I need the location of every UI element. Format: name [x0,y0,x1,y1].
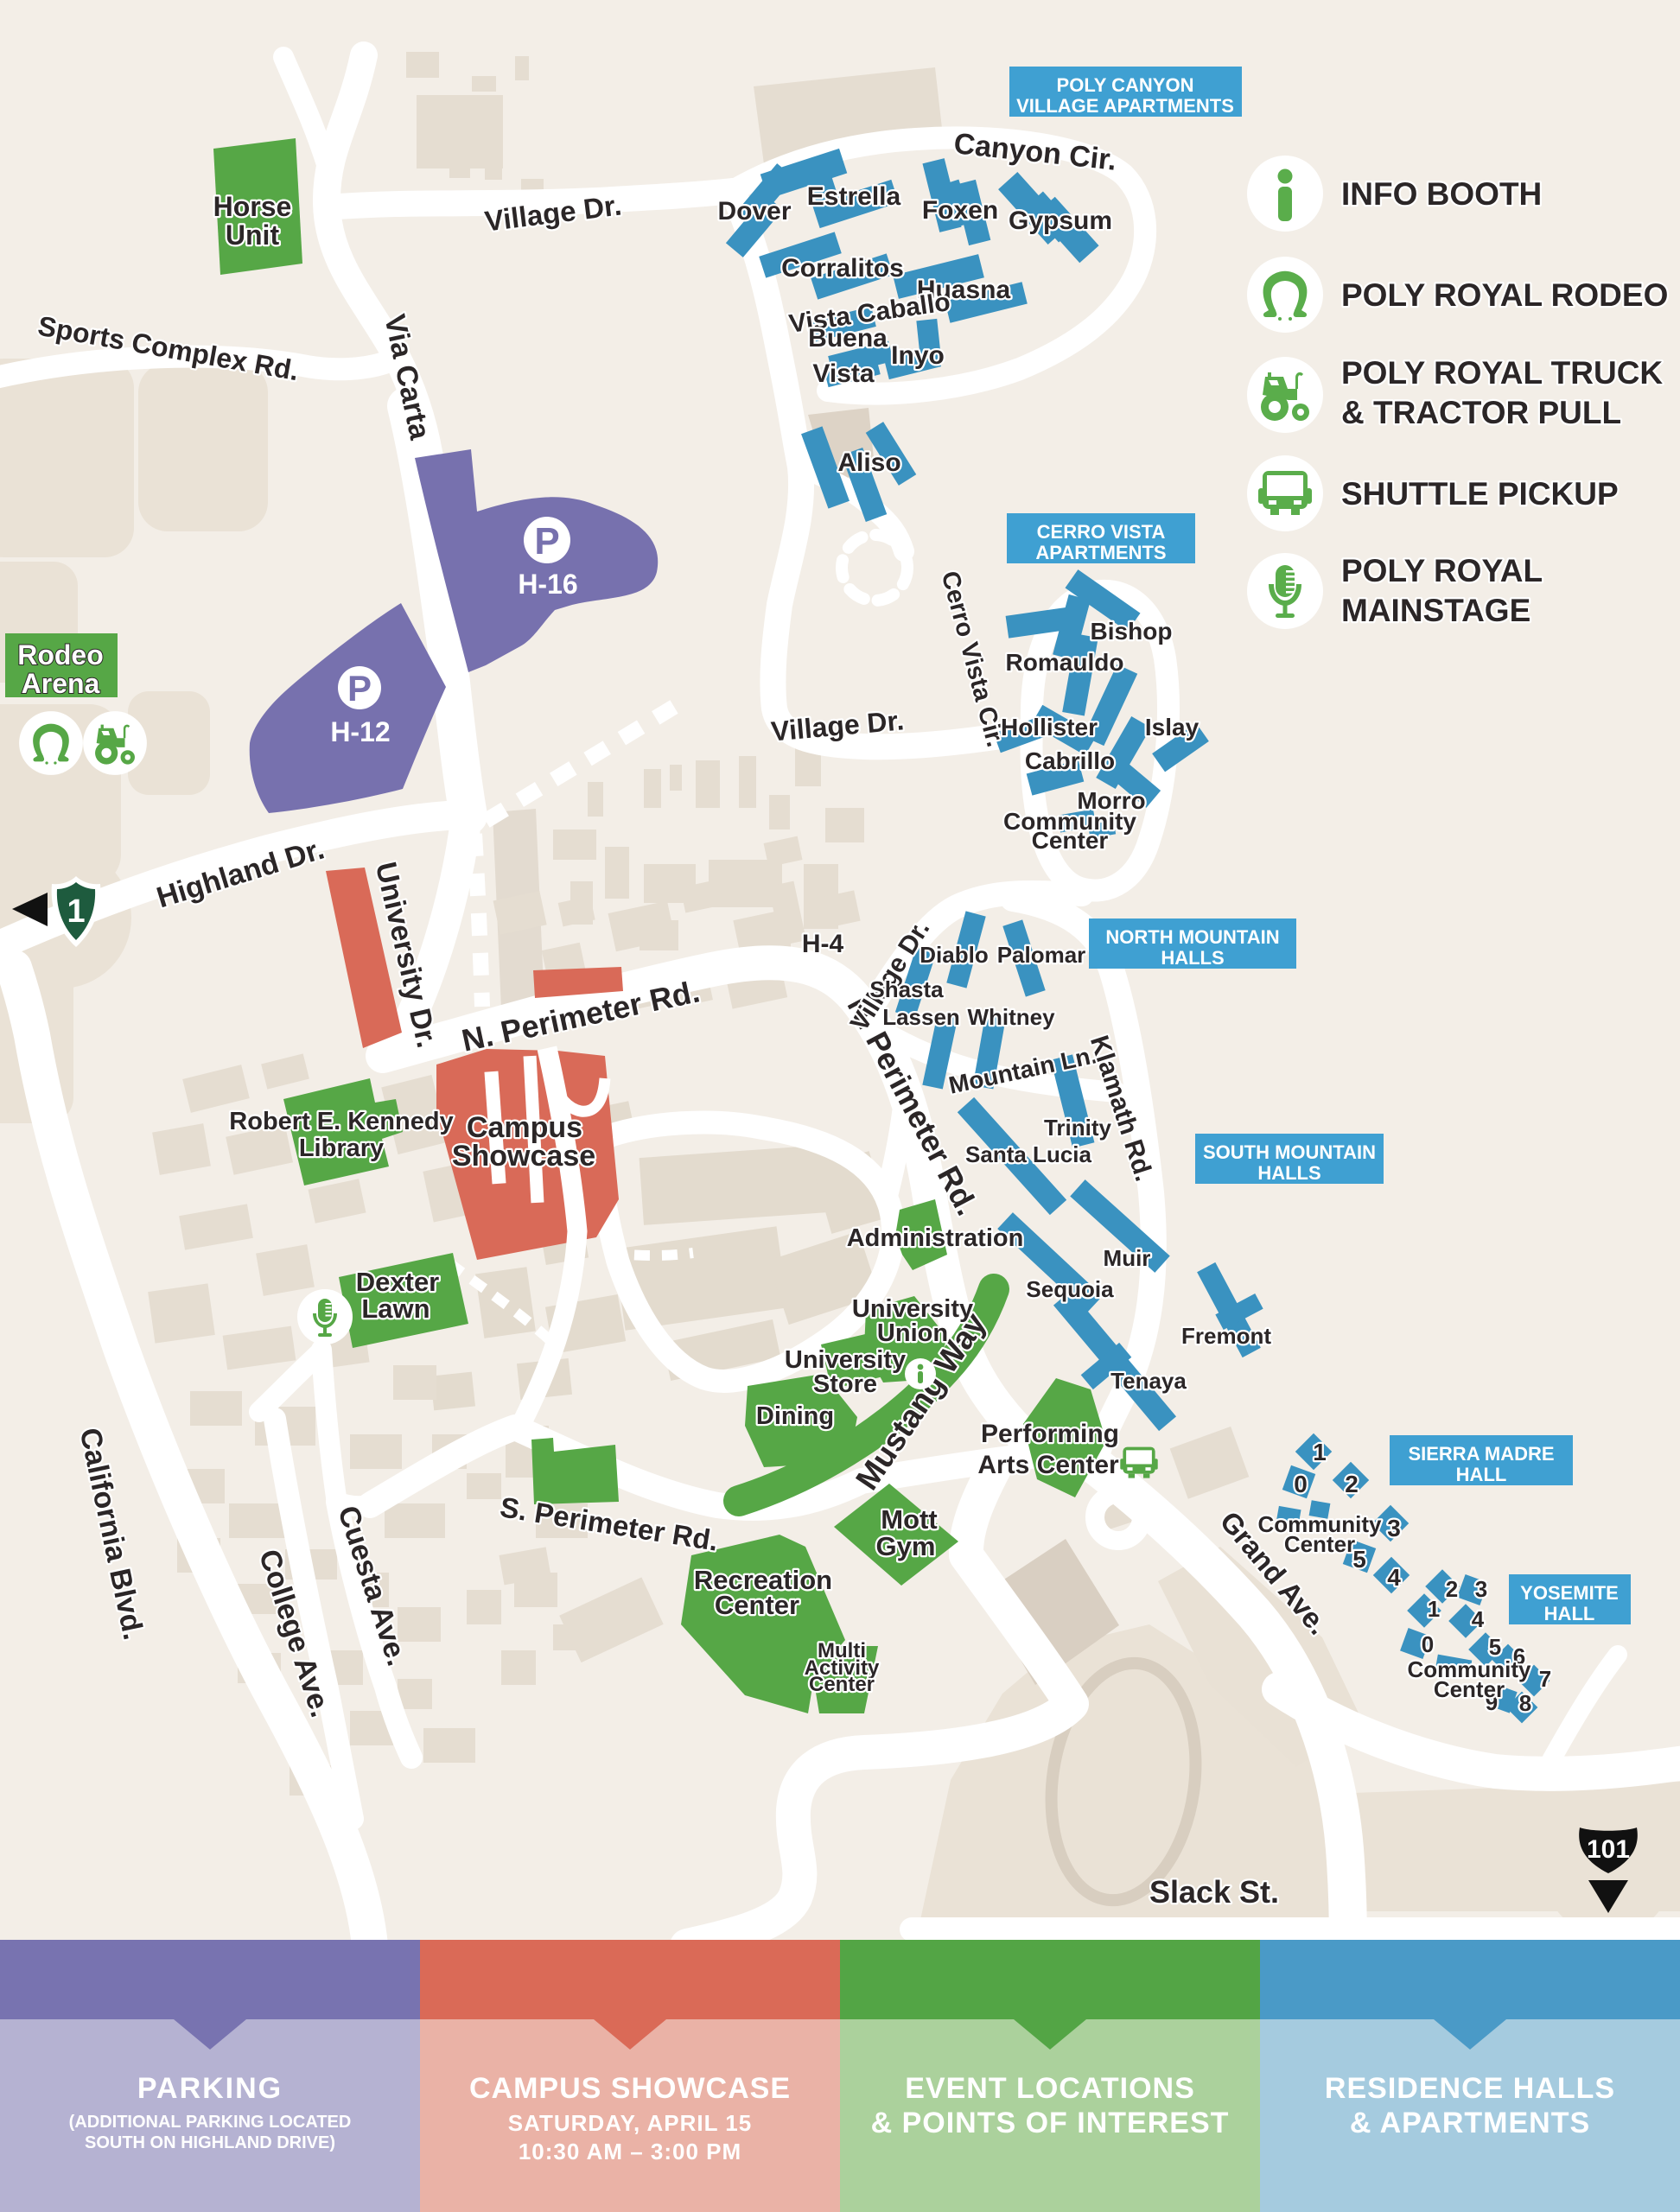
svg-text:10:30 AM – 3:00 PM: 10:30 AM – 3:00 PM [519,2139,741,2164]
svg-text:Gypsum: Gypsum [1009,207,1112,235]
svg-text:101: 101 [1587,1835,1630,1864]
svg-text:H-4: H-4 [802,930,844,958]
svg-text:Estrella: Estrella [807,182,901,211]
svg-text:Palomar: Palomar [997,942,1086,968]
svg-text:HALL: HALL [1544,1603,1595,1624]
svg-text:APARTMENTS: APARTMENTS [1035,542,1166,563]
svg-text:1: 1 [67,893,85,930]
svg-text:Islay: Islay [1145,714,1200,741]
svg-text:Arts Center: Arts Center [977,1451,1119,1479]
svg-text:Unit: Unit [226,219,280,251]
svg-text:Buena: Buena [808,324,888,353]
svg-text:POLY ROYAL RODEO: POLY ROYAL RODEO [1341,277,1668,313]
svg-text:POLY CANYON: POLY CANYON [1057,74,1194,96]
svg-text:Mott: Mott [881,1504,937,1535]
svg-text:RESIDENCE HALLS: RESIDENCE HALLS [1325,2072,1615,2105]
svg-text:Center: Center [715,1590,799,1620]
svg-text:4: 4 [1472,1606,1485,1632]
svg-text:Dover: Dover [717,197,791,226]
svg-text:P: P [534,520,559,563]
svg-text:7: 7 [1539,1666,1551,1692]
svg-text:SATURDAY, APRIL 15: SATURDAY, APRIL 15 [508,2110,752,2136]
svg-text:SHUTTLE PICKUP: SHUTTLE PICKUP [1341,476,1619,512]
svg-text:Santa Lucia: Santa Lucia [965,1141,1091,1167]
svg-text:Romauldo: Romauldo [1006,649,1124,676]
svg-text:MAINSTAGE: MAINSTAGE [1341,593,1530,628]
svg-text:0: 0 [1422,1631,1434,1657]
svg-text:Horse: Horse [213,191,292,222]
svg-text:VILLAGE APARTMENTS: VILLAGE APARTMENTS [1016,95,1234,117]
svg-text:Tenaya: Tenaya [1110,1368,1187,1394]
svg-text:Fremont: Fremont [1181,1323,1271,1349]
svg-text:Corralitos: Corralitos [781,254,904,283]
svg-text:YOSEMITE: YOSEMITE [1520,1582,1619,1604]
svg-text:SOUTH MOUNTAIN: SOUTH MOUNTAIN [1203,1141,1376,1163]
svg-text:0: 0 [1294,1471,1308,1497]
svg-text:CERRO VISTA: CERRO VISTA [1037,521,1166,543]
svg-text:HALLS: HALLS [1161,947,1224,969]
svg-text:Library: Library [299,1135,384,1162]
svg-text:4: 4 [1387,1564,1401,1591]
svg-text:Dexter: Dexter [356,1267,440,1297]
svg-text:P: P [347,668,372,709]
svg-text:2: 2 [1345,1471,1359,1497]
svg-text:Robert E. Kennedy: Robert E. Kennedy [229,1108,453,1135]
svg-text:Center: Center [809,1673,875,1696]
svg-text:Center: Center [1284,1531,1355,1557]
svg-text:Store: Store [813,1370,877,1398]
svg-text:Hollister: Hollister [1001,714,1098,741]
svg-text:& POINTS OF INTEREST: & POINTS OF INTEREST [871,2107,1230,2139]
svg-text:Whitney: Whitney [967,1004,1055,1030]
svg-text:Trinity: Trinity [1044,1115,1112,1141]
svg-text:EVENT LOCATIONS: EVENT LOCATIONS [905,2072,1195,2105]
svg-text:H-16: H-16 [518,569,577,600]
svg-text:SOUTH ON HIGHLAND DRIVE): SOUTH ON HIGHLAND DRIVE) [85,2133,335,2152]
svg-text:Lawn: Lawn [361,1294,430,1324]
svg-text:Aliso: Aliso [837,448,900,477]
svg-text:Dining: Dining [756,1402,834,1430]
svg-text:HALL: HALL [1456,1464,1507,1485]
svg-text:Muir: Muir [1104,1245,1151,1271]
svg-text:Lassen: Lassen [882,1004,960,1030]
svg-text:Gym: Gym [876,1531,936,1561]
svg-text:Union: Union [877,1319,948,1347]
svg-text:Inyo: Inyo [891,341,945,370]
svg-text:INFO BOOTH: INFO BOOTH [1341,176,1542,212]
svg-text:& APARTMENTS: & APARTMENTS [1350,2107,1590,2139]
svg-text:POLY ROYAL TRUCK: POLY ROYAL TRUCK [1341,355,1663,391]
svg-text:Arena: Arena [22,668,100,699]
svg-text:HALLS: HALLS [1257,1162,1320,1184]
svg-text:Shasta: Shasta [869,976,944,1002]
svg-text:Showcase: Showcase [452,1140,595,1173]
svg-text:SIERRA MADRE: SIERRA MADRE [1408,1443,1554,1465]
svg-text:Center: Center [1434,1676,1505,1702]
svg-text:Foxen: Foxen [922,196,998,225]
svg-text:Administration: Administration [847,1224,1024,1252]
svg-text:(ADDITIONAL PARKING LOCATED: (ADDITIONAL PARKING LOCATED [69,2113,352,2132]
svg-text:Slack St.: Slack St. [1149,1874,1279,1910]
svg-text:Vista: Vista [812,359,874,388]
svg-text:Performing: Performing [981,1420,1119,1448]
svg-text:NORTH MOUNTAIN: NORTH MOUNTAIN [1105,926,1279,948]
svg-text:PARKING: PARKING [137,2072,283,2105]
svg-text:Bishop: Bishop [1091,618,1173,645]
svg-text:3: 3 [1387,1515,1401,1541]
svg-text:8: 8 [1519,1690,1531,1716]
svg-text:H-12: H-12 [330,716,390,747]
svg-text:POLY ROYAL: POLY ROYAL [1341,553,1543,588]
svg-text:Diablo: Diablo [920,942,988,968]
svg-text:3: 3 [1475,1576,1487,1602]
svg-text:& TRACTOR PULL: & TRACTOR PULL [1341,395,1621,430]
svg-text:2: 2 [1446,1576,1458,1602]
svg-text:Sequoia: Sequoia [1026,1276,1114,1302]
svg-text:1: 1 [1428,1596,1440,1622]
svg-text:Cabrillo: Cabrillo [1025,747,1115,774]
svg-text:Center: Center [1032,827,1109,854]
svg-text:CAMPUS SHOWCASE: CAMPUS SHOWCASE [469,2072,791,2105]
svg-text:1: 1 [1313,1439,1327,1465]
svg-text:Rodeo: Rodeo [17,639,104,671]
